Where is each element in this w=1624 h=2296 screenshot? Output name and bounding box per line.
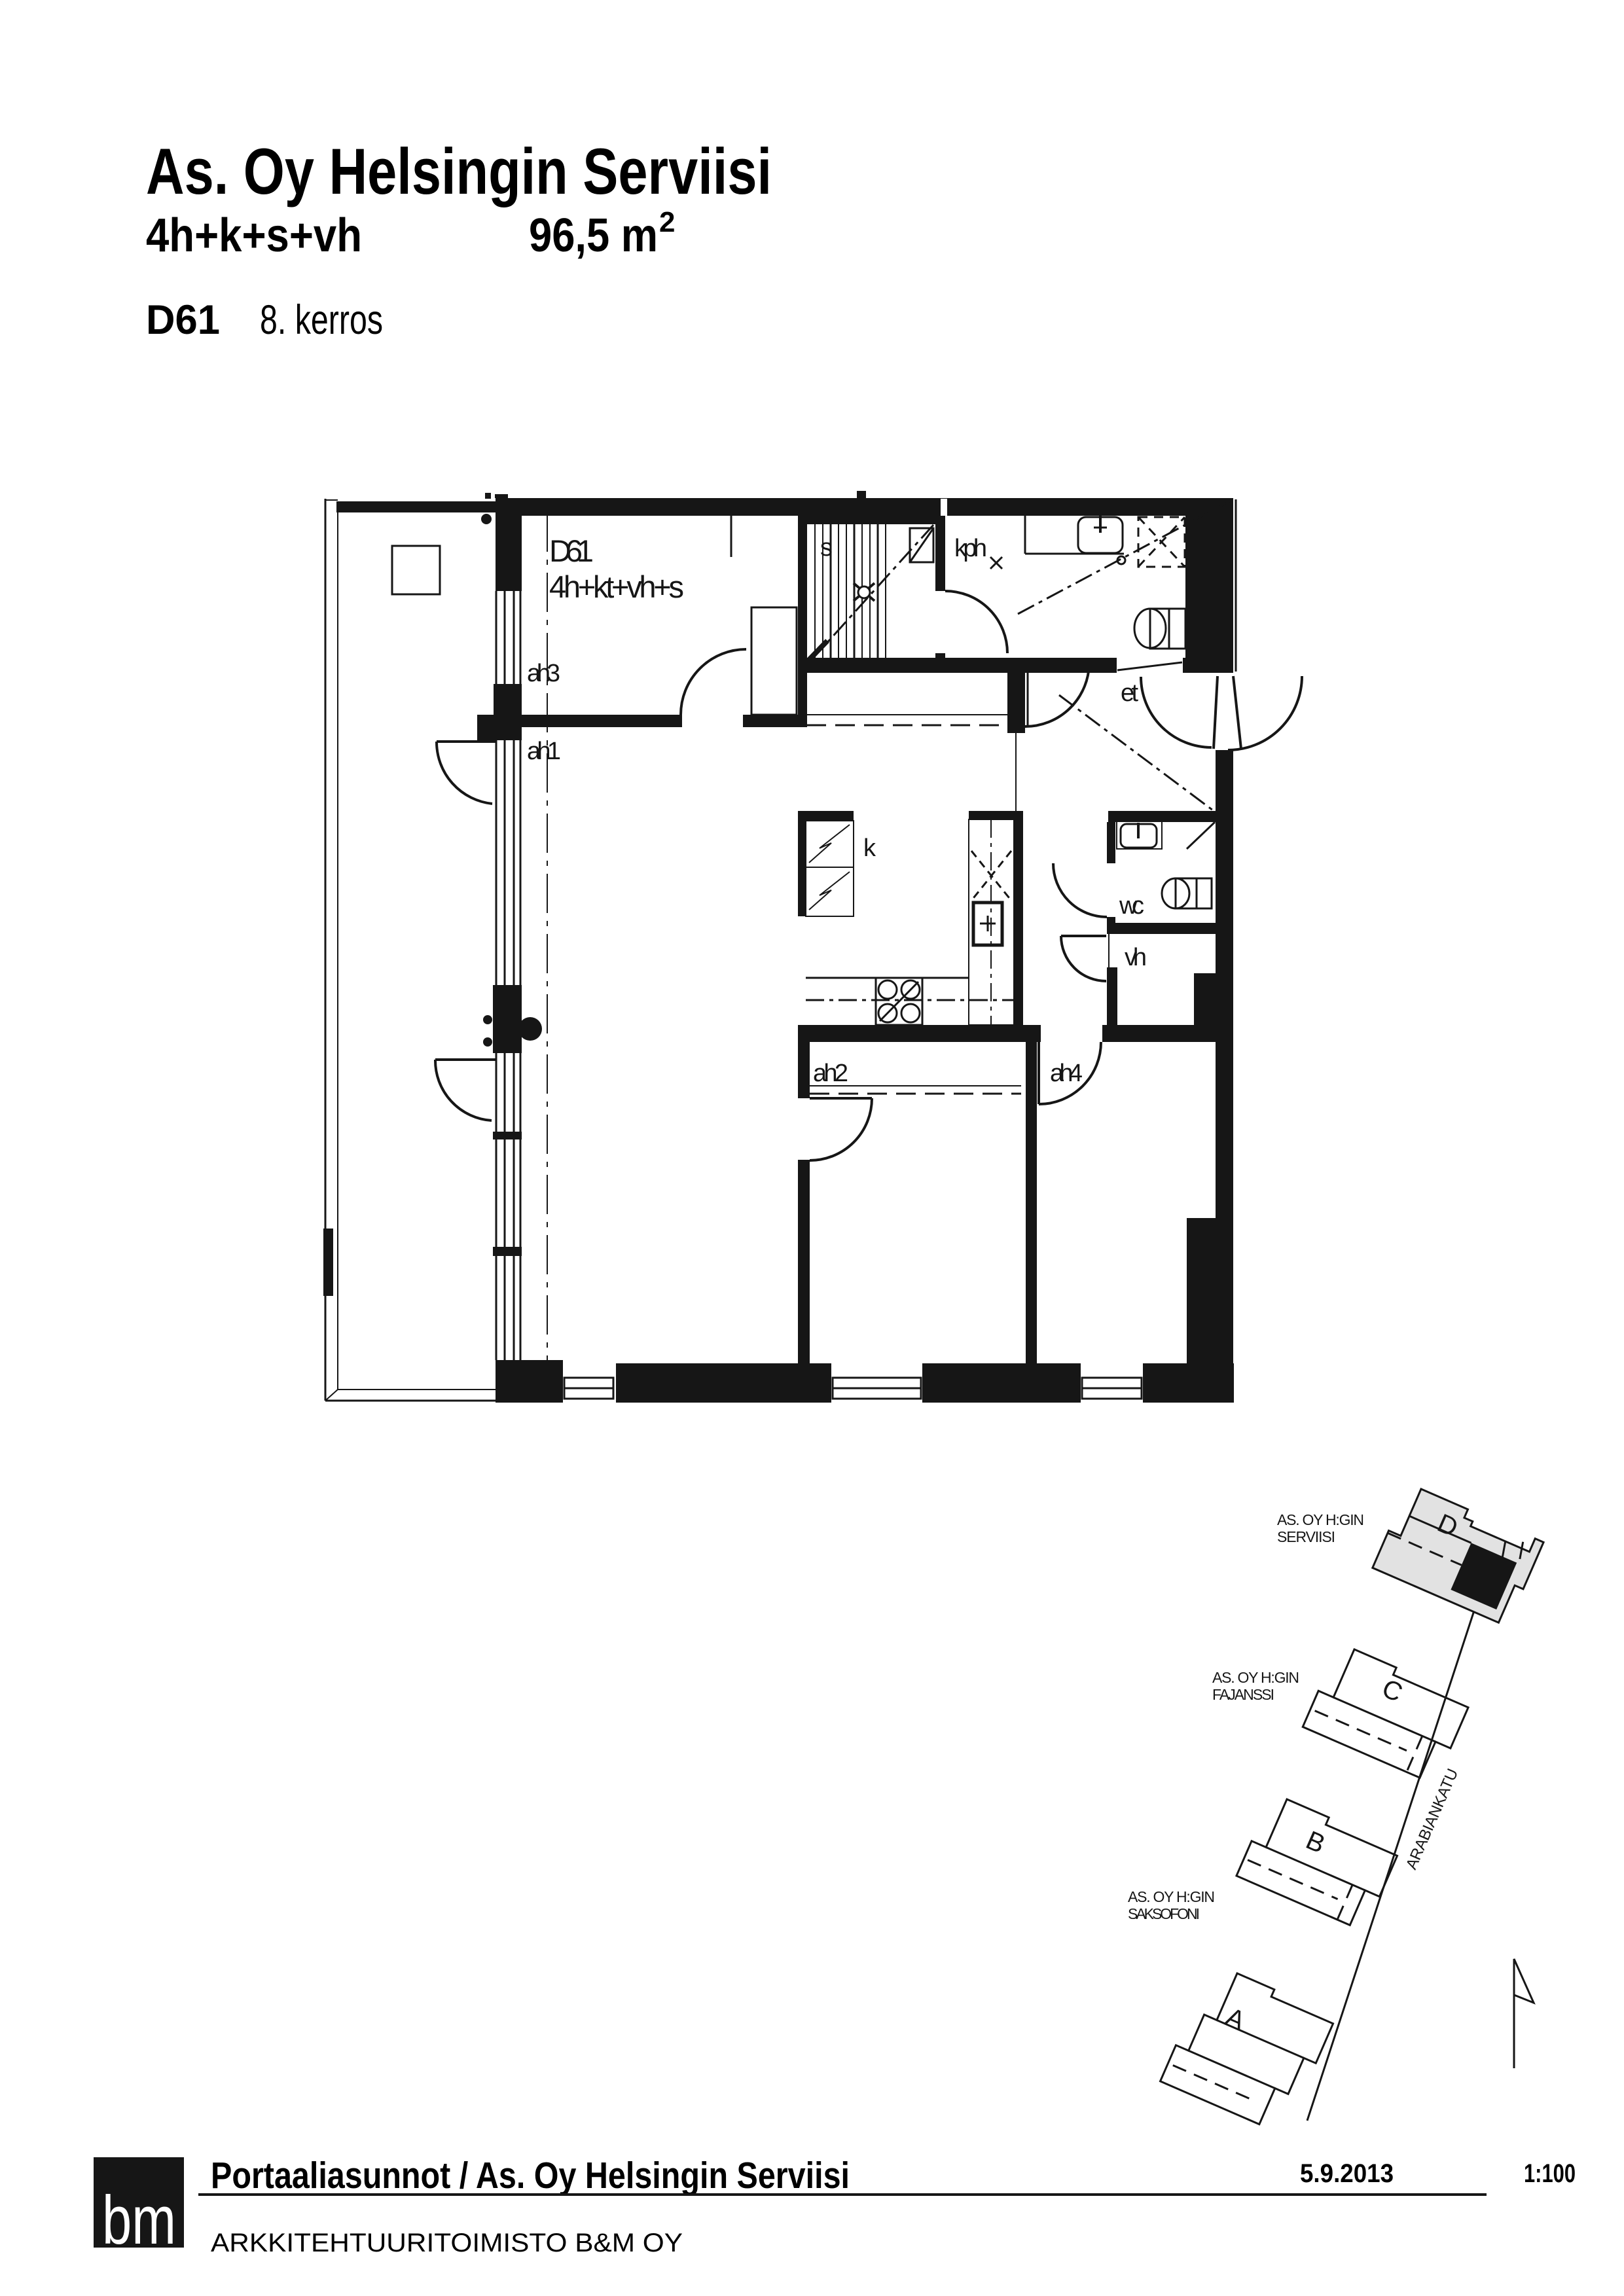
svg-text:ah4: ah4 [1050, 1060, 1083, 1087]
svg-text:SAKSOFONI: SAKSOFONI [1128, 1905, 1200, 1922]
svg-text:1:100: 1:100 [1524, 2159, 1576, 2188]
svg-text:8. kerros: 8. kerros [260, 297, 383, 343]
svg-text:D61: D61 [146, 297, 220, 343]
svg-text:96,5 m: 96,5 m [529, 209, 658, 262]
svg-text:ah1: ah1 [527, 738, 561, 765]
svg-text:bm: bm [102, 2182, 176, 2259]
svg-text:k: k [863, 834, 876, 862]
svg-text:vh: vh [1125, 944, 1147, 971]
svg-text:wc: wc [1119, 892, 1144, 920]
svg-text:AS. OY H:GIN: AS. OY H:GIN [1277, 1511, 1364, 1528]
svg-text:ah3: ah3 [527, 660, 560, 687]
svg-text:AS. OY H:GIN: AS. OY H:GIN [1212, 1669, 1299, 1686]
svg-text:2: 2 [659, 206, 675, 238]
svg-text:kph: kph [954, 535, 987, 562]
svg-text:ARKKITEHTUURITOIMISTO B&M OY: ARKKITEHTUURITOIMISTO B&M OY [211, 2229, 683, 2257]
svg-text:D61: D61 [549, 533, 594, 568]
svg-text:5.9.2013: 5.9.2013 [1300, 2159, 1394, 2188]
svg-text:Portaaliasunnot / As. Oy Helsi: Portaaliasunnot / As. Oy Helsingin Servi… [211, 2155, 850, 2197]
svg-text:ah2: ah2 [813, 1060, 848, 1087]
svg-text:4h+kt+vh+s: 4h+kt+vh+s [549, 569, 684, 604]
svg-text:FAJANSSI: FAJANSSI [1212, 1686, 1274, 1703]
svg-text:SERVIISI: SERVIISI [1277, 1528, 1335, 1545]
svg-text:et: et [1121, 679, 1138, 707]
svg-text:As. Oy Helsingin Serviisi: As. Oy Helsingin Serviisi [146, 135, 772, 207]
svg-text:AS. OY H:GIN: AS. OY H:GIN [1128, 1888, 1215, 1905]
svg-text:s: s [820, 534, 833, 562]
svg-text:4h+k+s+vh: 4h+k+s+vh [146, 209, 362, 262]
